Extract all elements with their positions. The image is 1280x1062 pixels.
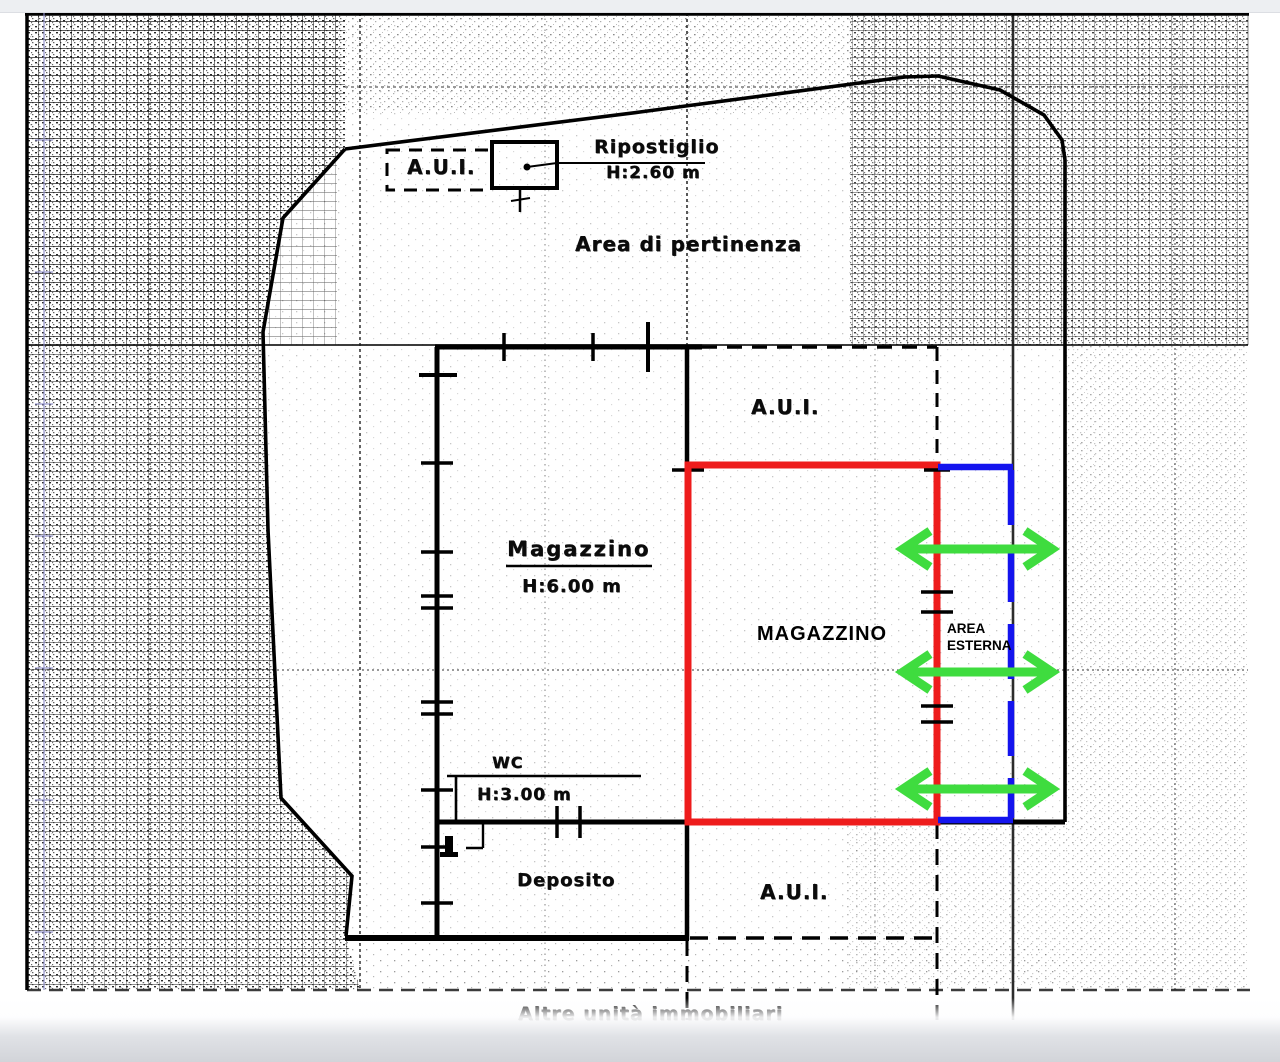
label-ripostiglio-height: H:2.60 m — [606, 163, 701, 183]
label-ripostiglio: Ripostiglio — [594, 136, 719, 158]
page-top-edge — [0, 0, 1280, 13]
page-bottom-fade — [0, 998, 1280, 1062]
label-magazzino: Magazzino — [507, 537, 650, 561]
label-wc-height: H:3.00 m — [477, 785, 572, 805]
floor-plan-drawing — [0, 0, 1280, 1062]
label-area-pertinenza: Area di pertinenza — [575, 232, 802, 256]
label-aui-top: A.U.I. — [407, 155, 475, 179]
scanned-floor-plan-page: A.U.I. Ripostiglio H:2.60 m Area di pert… — [0, 0, 1280, 1062]
label-area-esterna-line2: ESTERNA — [947, 637, 1012, 654]
label-aui-upper: A.U.I. — [751, 395, 819, 419]
label-wc: WC — [492, 753, 523, 772]
label-magazzino-height: H:6.00 m — [522, 576, 622, 597]
label-deposito: Deposito — [517, 870, 615, 891]
label-aui-lower: A.U.I. — [760, 880, 828, 904]
label-area-esterna-line1: AREA — [947, 620, 1012, 637]
label-area-esterna: AREA ESTERNA — [947, 620, 1012, 654]
label-magazzino-overlay: MAGAZZINO — [757, 623, 887, 646]
